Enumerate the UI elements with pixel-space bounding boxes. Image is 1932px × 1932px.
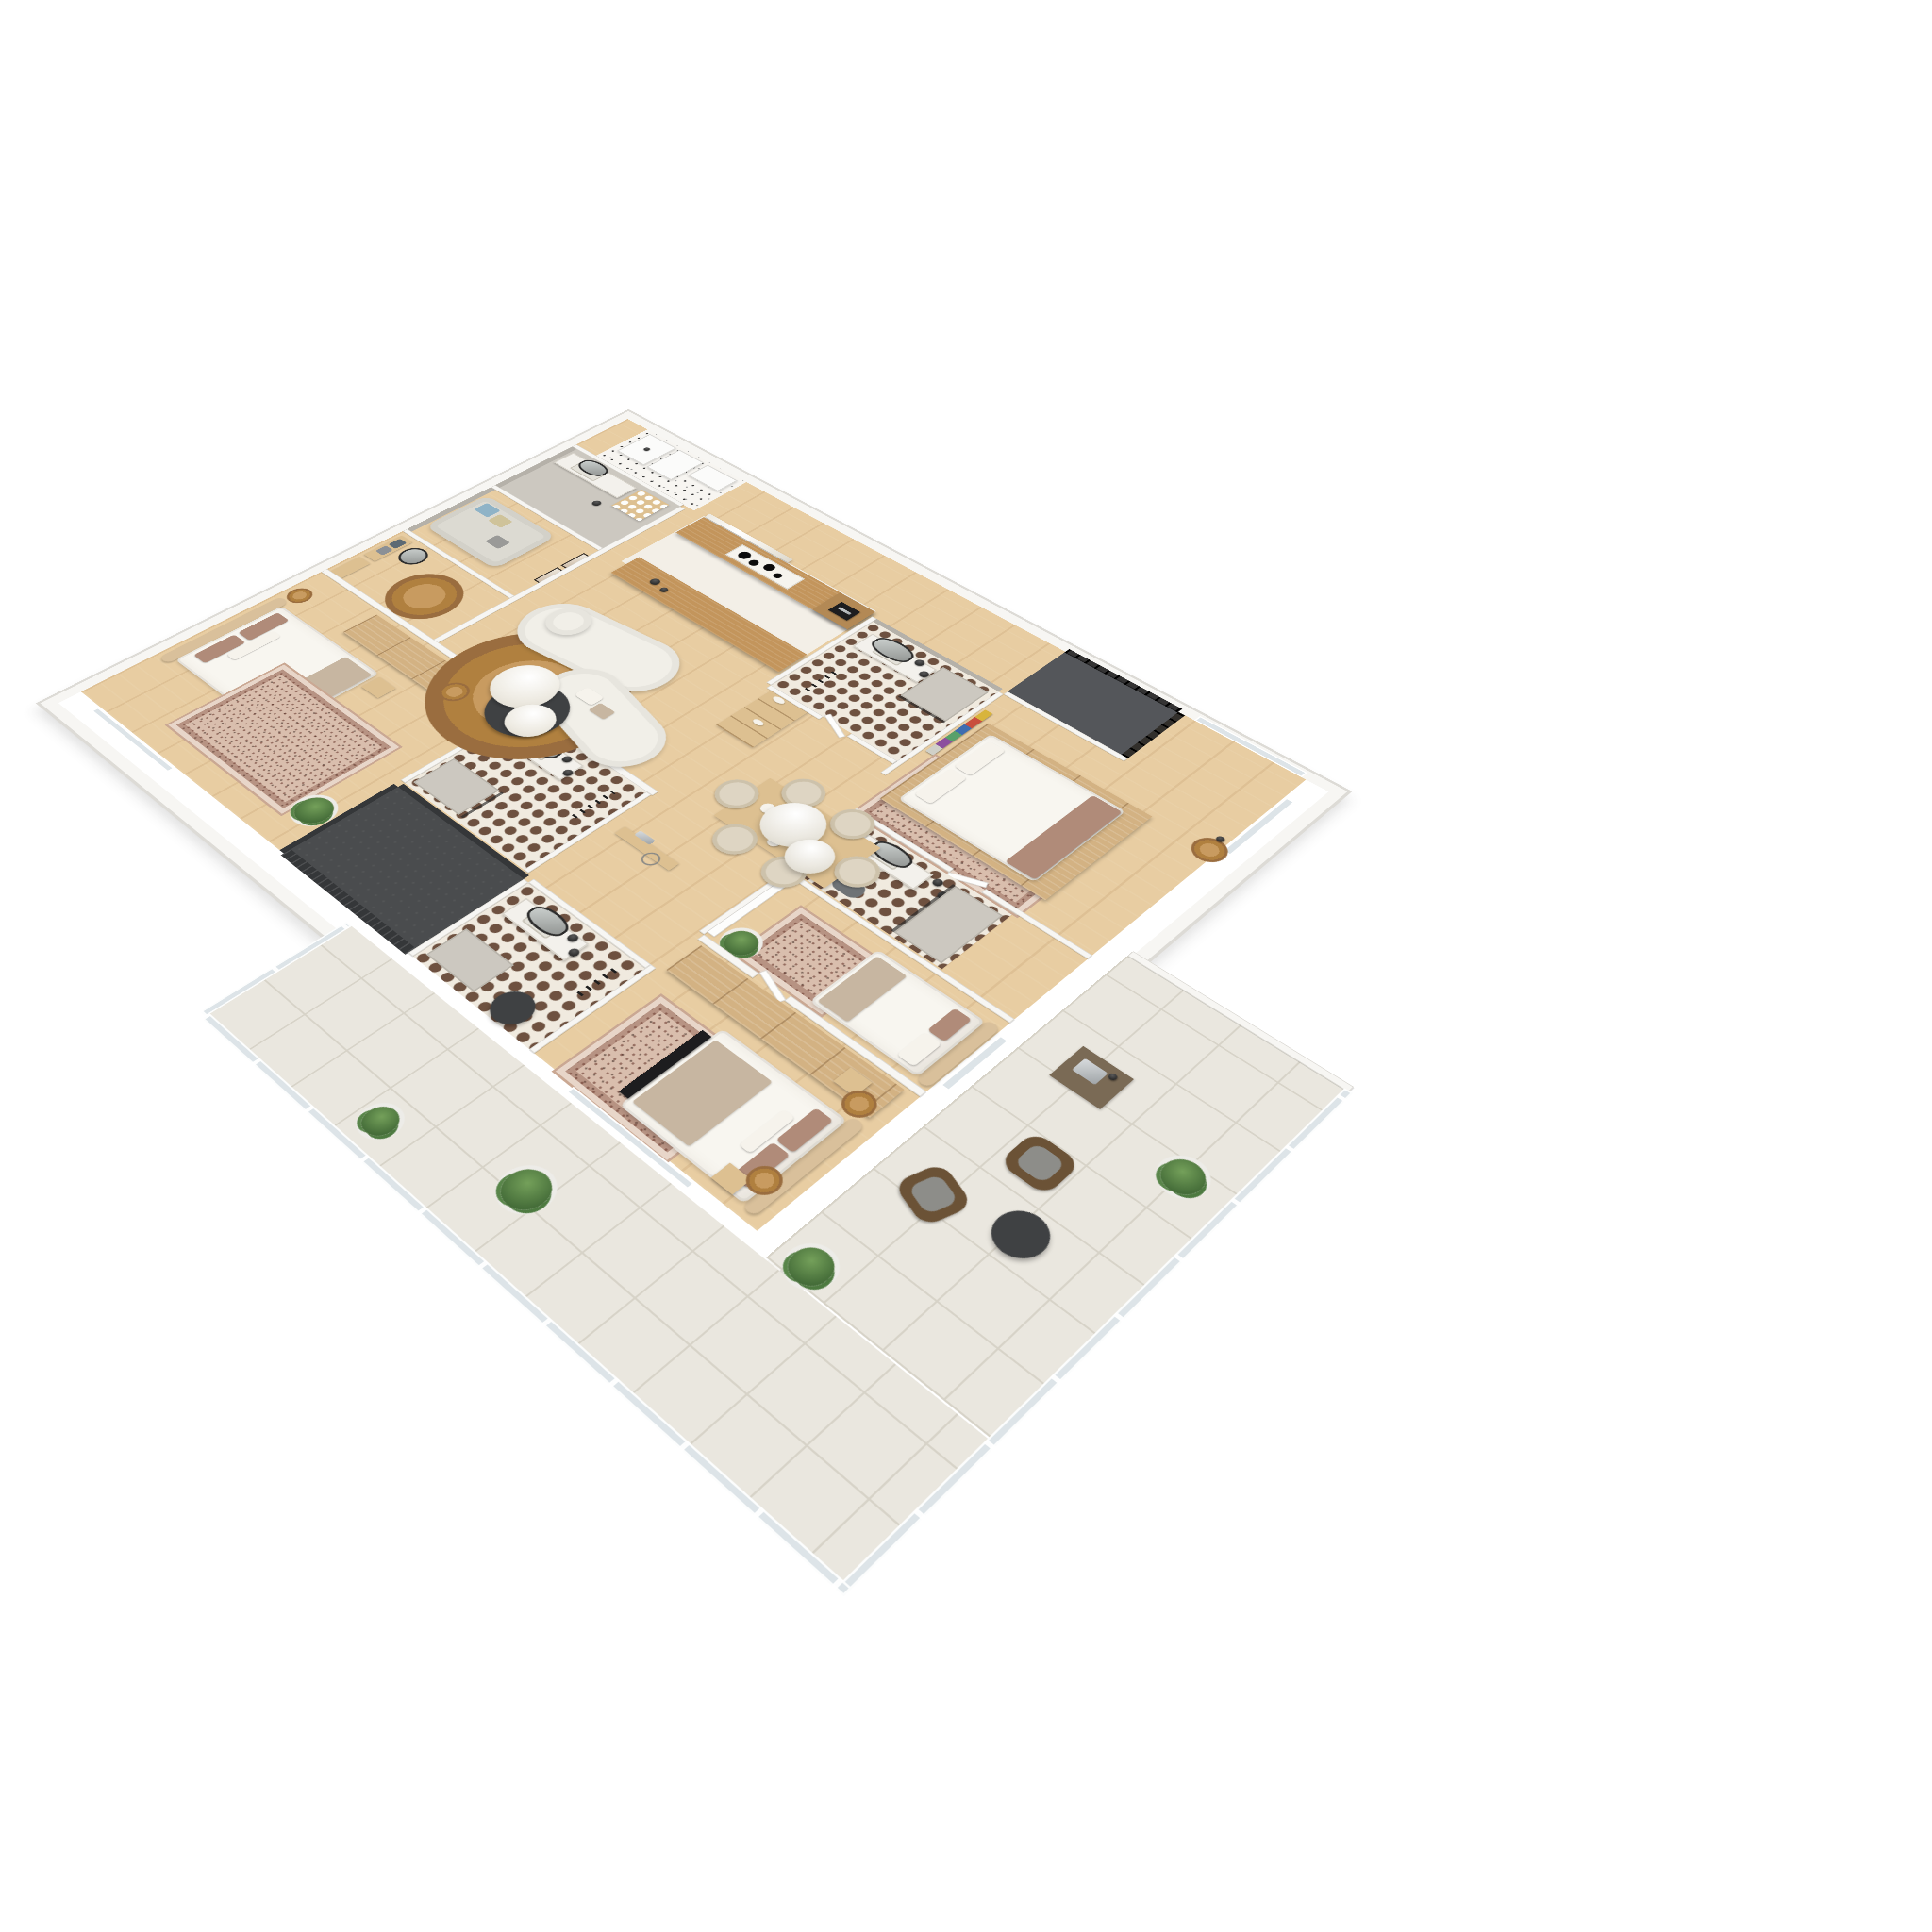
floor-plan [0, 411, 1552, 1601]
floor-plan-scene [0, 0, 1932, 1932]
